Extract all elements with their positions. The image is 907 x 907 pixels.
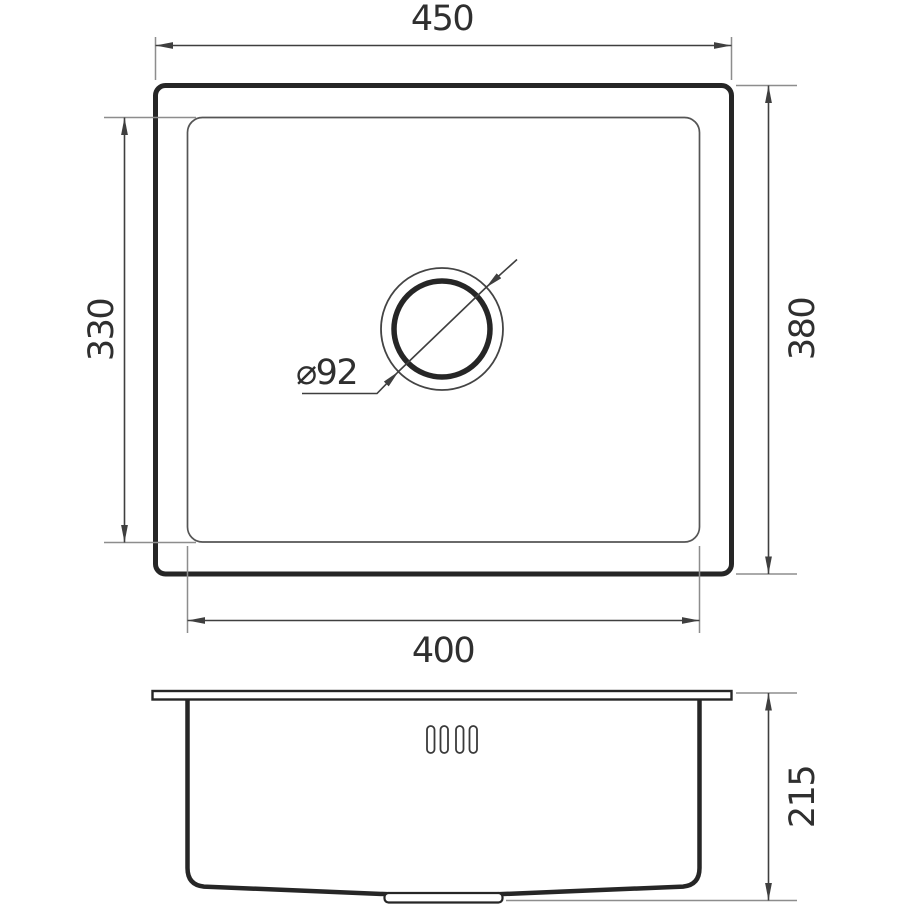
overflow-slot [456,726,464,753]
side-view: 215 [153,691,824,903]
overflow-slot [470,726,478,753]
side-rim-flange [153,691,732,700]
sink-outer-rim [156,86,732,575]
dim-330-label: 330 [82,299,122,361]
dim-400-label: 400 [412,631,474,671]
top-view: ⌀92 450 330 380 400 [82,0,823,671]
dim-215-label: 215 [783,766,823,828]
dim-400: 400 [188,546,700,671]
overflow-slot [427,726,435,753]
overflow-slot [441,726,449,753]
side-bowl-profile [188,700,700,897]
dim-450: 450 [156,0,732,80]
dim-380: 380 [736,86,823,575]
dim-330: 330 [82,118,196,543]
dim-215: 215 [506,693,823,901]
leader-upper-segment [486,260,517,288]
dim-450-label: 450 [411,0,473,39]
overflow-slots-icon [427,726,477,753]
sink-dimension-drawing: ⌀92 450 330 380 400 [0,0,907,907]
drawing-svg: ⌀92 450 330 380 400 [0,0,907,907]
drain-diameter-label: ⌀92 [296,353,357,393]
side-drain-fitting [385,893,503,903]
sink-inner-bowl-edge [188,118,700,543]
dim-380-label: 380 [783,298,823,360]
leader-cross-segment [399,288,487,372]
